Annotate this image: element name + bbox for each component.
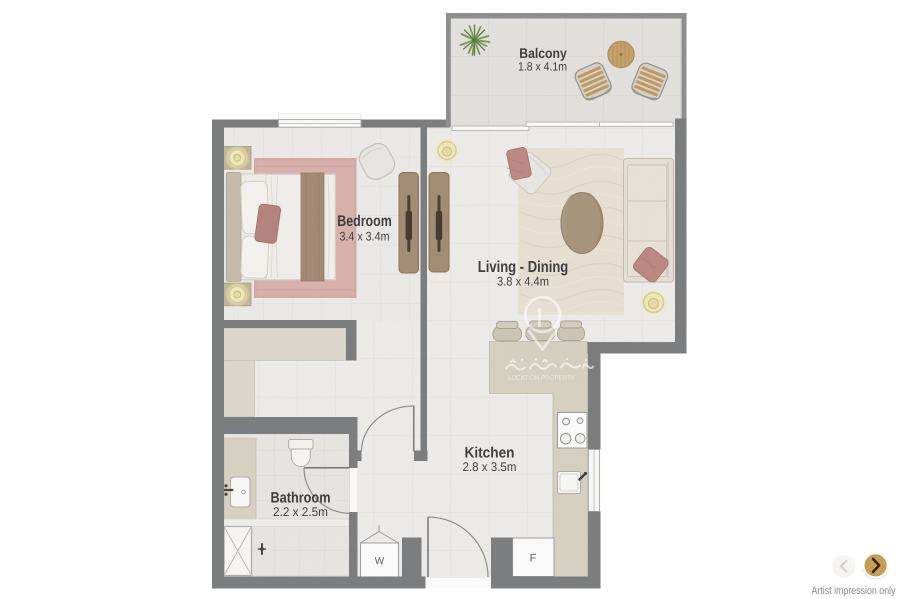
svg-text:LOCATION PROPERTY: LOCATION PROPERTY: [508, 375, 575, 382]
svg-text:3.4 x 3.4m: 3.4 x 3.4m: [340, 230, 390, 244]
svg-text:Living - Dining: Living - Dining: [478, 259, 569, 276]
svg-text:2.2 x 2.5m: 2.2 x 2.5m: [273, 505, 328, 519]
svg-text:Bathroom: Bathroom: [271, 490, 331, 507]
svg-text:3.8 x 4.4m: 3.8 x 4.4m: [497, 275, 549, 289]
svg-text:Kitchen: Kitchen: [465, 445, 515, 462]
svg-text:Artist impression only: Artist impression only: [812, 585, 896, 597]
svg-text:2.8 x 3.5m: 2.8 x 3.5m: [463, 460, 517, 474]
svg-text:Bedroom: Bedroom: [337, 213, 392, 230]
svg-text:1.8 x 4.1m: 1.8 x 4.1m: [518, 60, 567, 74]
